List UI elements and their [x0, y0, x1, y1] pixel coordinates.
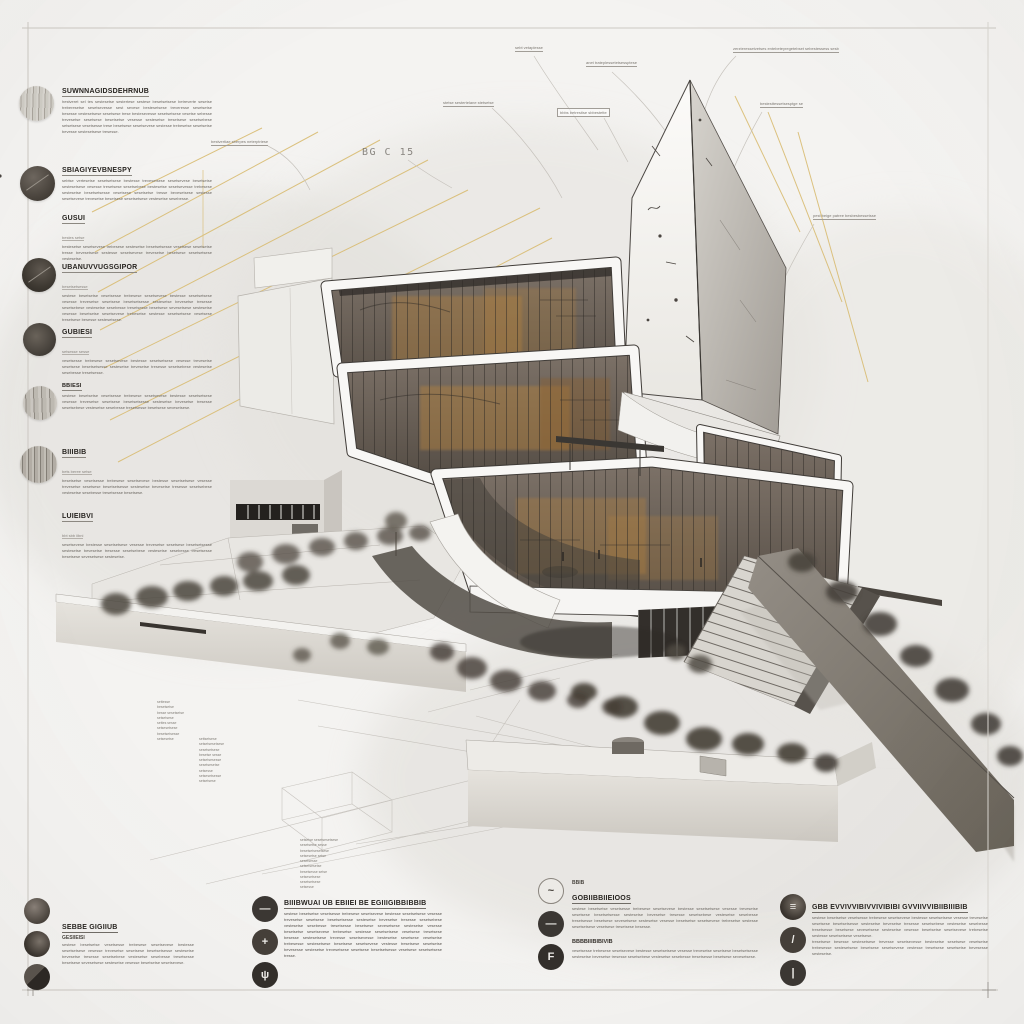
section-subheading: setsesse sesse: [62, 349, 89, 355]
thumbnail-louvre-detail: [20, 446, 57, 483]
left-section: UBANUVVUGSGIPOR besetsetsesse sestese be…: [62, 256, 212, 323]
callout-label: bestesttessetsesptge se: [760, 101, 803, 108]
stylus-icon: /: [780, 927, 806, 953]
blade-icon: —: [538, 911, 564, 937]
callout-label: pest beige patree besbesbessetsse: [813, 213, 876, 220]
grid-reference-label: BG C 15: [362, 147, 415, 158]
section-heading: UBANUVVUGSGIPOR: [62, 264, 137, 273]
thumbnail-facade-sketch: [19, 86, 54, 121]
legend-subheading: BBBBIIIBIBIVIB: [572, 939, 613, 945]
legend-subheading: GESIIEISI: [62, 935, 194, 941]
site-note: settesse besetsetse besse sesetsetse set…: [157, 700, 201, 742]
legend-icon-stack: [24, 898, 50, 990]
left-section: SBIAGIYEVBNESPY sebtse vertesetse sesets…: [62, 159, 212, 202]
legend-icon-stack: — + ψ: [252, 896, 278, 988]
brush-icon: |: [780, 960, 806, 986]
left-section: BBIESI sestese besetsetse vesetsesse tre…: [62, 374, 212, 411]
f-marker-icon: F: [538, 944, 564, 970]
section-subheading: bbt sbb iibni: [62, 533, 83, 539]
callout-label: sebt vetaplesse: [515, 45, 543, 52]
section-heading: SUWNNAGIDSDEHRNUB: [62, 88, 149, 97]
legend-block: SEBBE GIGIIUB GESIIEISI sestese besetset…: [62, 916, 194, 966]
legend-body: tresetsese besesse sestesetsese trevesse…: [812, 939, 988, 957]
section-heading: GUSUI: [62, 215, 85, 224]
section-heading: SBIAGIYEVBNESPY: [62, 167, 132, 176]
left-section: GUSUI bestes setse bestesetse sesetseves…: [62, 207, 212, 262]
legend-heading: GOBIIBBIIEIOOS: [572, 895, 631, 904]
legend-icon-stack: ≡ / |: [780, 894, 806, 986]
plant-icon: ψ: [252, 962, 278, 988]
legend-block: GBB EVVIVVIBIVVIVIBIBI GVVIIVVIBIIBIIIBI…: [812, 896, 988, 957]
callout-label: zerzteressetvetses entebeteyregetebset s…: [733, 46, 839, 53]
sliced-disc-icon: [24, 964, 50, 990]
left-section: LUIEIBVI bbt sbb iibni sesetsevese beste…: [62, 505, 212, 560]
presentation-board: SUWNNAGIDSDEHRNUB hestveret sel tes sest…: [0, 0, 1024, 1024]
legend-body: sestese besetsetse vesetsesse trebesese …: [572, 906, 758, 930]
site-note: setsetse sesetsesetsese sesetsetse sesse…: [300, 838, 352, 891]
legend-icon-stack: ~ — F: [538, 878, 564, 970]
section-body: sebtse vertesetse sesetsetsese bestesse …: [62, 178, 212, 203]
panel-lines-icon: ≡: [780, 894, 806, 920]
callout-label-boxed: bbbs betrestise sbbestette: [557, 108, 610, 117]
callout-label: bestvertiae sberpes neterptriese: [211, 139, 268, 146]
section-subheading: bets beree setse: [62, 469, 92, 475]
left-section: GUBIESI setsesse sesse vesetsesse trebes…: [62, 321, 212, 376]
site-note: settsetsese setsetsesetsese sesetsetsese…: [199, 737, 239, 784]
left-section: BIIIBIB bets beree setse besetsetse vese…: [62, 441, 212, 496]
legend-heading: GBB EVVIVVIBIVVIVIBIBI GVVIIVVIBIIBIIIBI…: [812, 904, 968, 913]
legend-heading: SEBBE GIGIIUB: [62, 924, 118, 933]
thumbnail-structure-node: [22, 258, 56, 292]
blade-icon: —: [252, 896, 278, 922]
callout-label: anet trateplessetetsessptese: [586, 60, 637, 67]
section-body: besetsetse vesetsesse trebesese sesetsev…: [62, 478, 212, 497]
legend-kicker: BBIB: [572, 880, 758, 886]
thumbnail-window-detail: [23, 386, 57, 420]
section-body: sestese besetsetse vesetsesse trebesese …: [62, 293, 212, 324]
legend-heading: BIIIBWUAI UB EBIIEI BE EGIIIGIBBIBBIB: [284, 900, 426, 909]
section-heading: BIIIBIB: [62, 449, 86, 458]
shaded-sphere-icon: [24, 931, 50, 957]
section-heading: LUIEIBVI: [62, 513, 93, 522]
section-heading: GUBIESI: [62, 329, 92, 338]
leaf-sketch-icon: ~: [538, 878, 564, 904]
section-body: sesetsevese bestesse sesetsetsese vesess…: [62, 542, 212, 561]
section-subheading: besetsetsesse: [62, 284, 88, 290]
legend-body: sestese besetsetse vesetsesse trebesese …: [284, 911, 442, 959]
thumbnail-cladding-panel: [23, 323, 56, 356]
section-body: sestese besetsetse vesetsesse trebesese …: [62, 393, 212, 412]
section-heading: BBIESI: [62, 383, 82, 391]
legend-body: vesetsesse trebesese sesetsevese bestess…: [572, 948, 758, 960]
stone-sphere-icon: [24, 898, 50, 924]
section-body: hestveret sel tes sestesetse sestertese …: [62, 99, 212, 136]
legend-body: sestese besetsetse vesetsesse trebesese …: [812, 915, 988, 939]
legend-block: BIIIBWUAI UB EBIIEI BE EGIIIGIBBIBBIB se…: [284, 892, 442, 959]
legend-block: BBIB GOBIIBBIIEIOOS sestese besetsetse v…: [572, 880, 758, 960]
callout-label: stetse sestertelane stetsetse: [443, 100, 494, 107]
thumbnail-roof-material: [20, 166, 55, 201]
section-subheading: bestes setse: [62, 235, 84, 241]
legend-body: sestese besetsetse vesetsesse trebesese …: [62, 942, 194, 966]
rotor-icon: +: [252, 929, 278, 955]
left-section: SUWNNAGIDSDEHRNUB hestveret sel tes sest…: [62, 80, 212, 136]
